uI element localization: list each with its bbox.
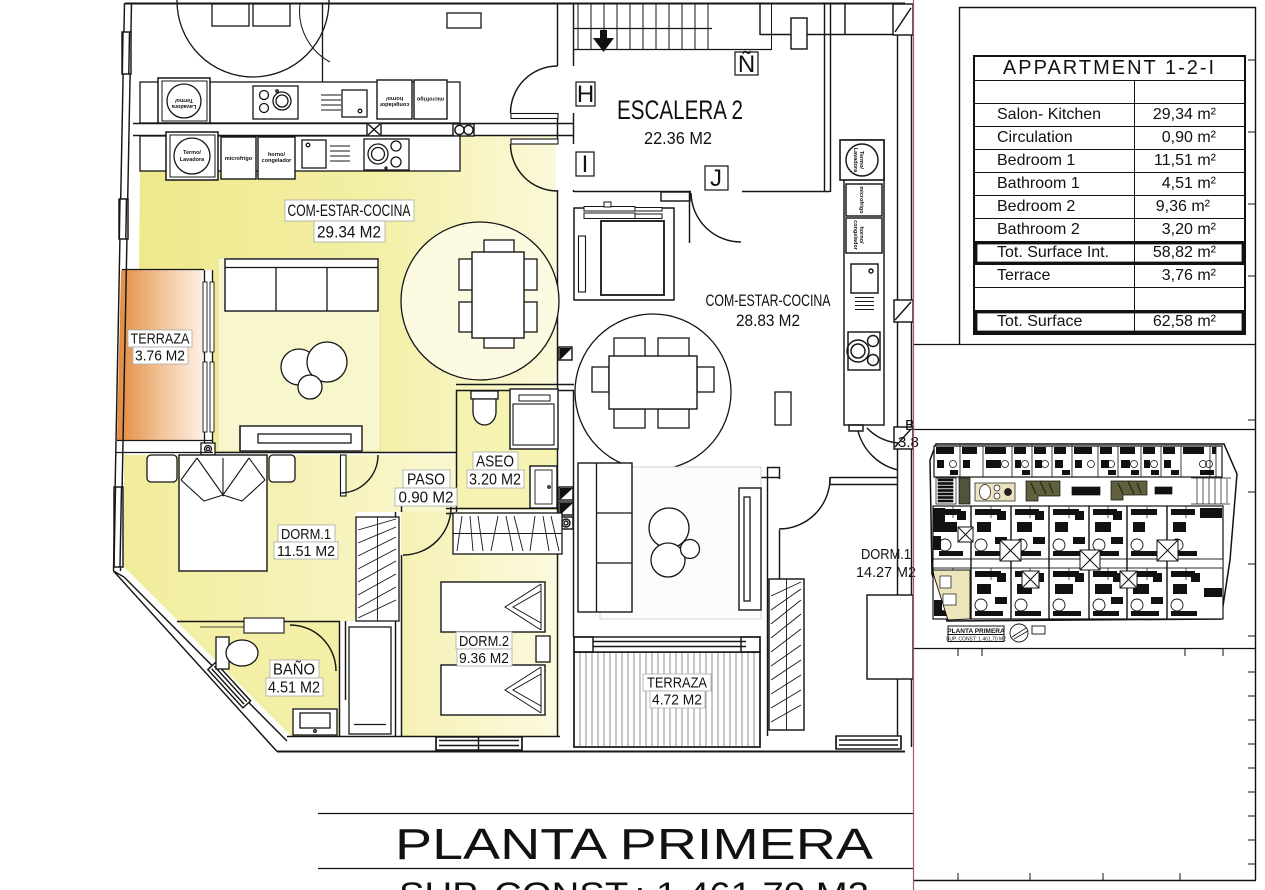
svg-text:PLANTA PRIMERA: PLANTA PRIMERA bbox=[947, 628, 1005, 635]
svg-text:DORM.1: DORM.1 bbox=[281, 526, 331, 543]
svg-text:9.36 M2: 9.36 M2 bbox=[459, 650, 509, 667]
svg-text:horno/: horno/ bbox=[385, 95, 403, 101]
svg-text:3.76 M2: 3.76 M2 bbox=[135, 348, 185, 365]
svg-text:14.27 M2: 14.27 M2 bbox=[856, 564, 916, 581]
svg-text:DORM.1: DORM.1 bbox=[861, 546, 911, 563]
svg-text:22.36 M2: 22.36 M2 bbox=[644, 128, 712, 148]
svg-text:PLANTA PRIMERA: PLANTA PRIMERA bbox=[395, 820, 874, 869]
svg-text:PASO: PASO bbox=[407, 472, 445, 489]
svg-text:J: J bbox=[710, 165, 722, 192]
svg-text:I: I bbox=[582, 151, 589, 178]
svg-text:3.8: 3.8 bbox=[898, 434, 919, 451]
svg-text:microfrigo: microfrigo bbox=[225, 156, 253, 162]
svg-text:Lavadora: Lavadora bbox=[852, 148, 858, 173]
svg-text:SUP. CONST: 1.461,70 M2: SUP. CONST: 1.461,70 M2 bbox=[946, 637, 1006, 643]
svg-text:28.83 M2: 28.83 M2 bbox=[736, 311, 800, 330]
svg-text:ESCALERA 2: ESCALERA 2 bbox=[617, 95, 743, 125]
svg-text:4.72 M2: 4.72 M2 bbox=[652, 692, 702, 709]
svg-text:TERRAZA: TERRAZA bbox=[647, 675, 707, 692]
svg-text:0.90 M2: 0.90 M2 bbox=[399, 490, 454, 507]
svg-text:4.51 M2: 4.51 M2 bbox=[268, 680, 320, 697]
svg-text:congelador: congelador bbox=[852, 220, 858, 251]
svg-text:Termo/: Termo/ bbox=[175, 97, 193, 103]
svg-text:29.34 M2: 29.34 M2 bbox=[317, 223, 381, 242]
svg-text:congelador: congelador bbox=[379, 101, 410, 107]
svg-text:microfrigo: microfrigo bbox=[416, 96, 444, 102]
svg-text:COM-ESTAR-COCINA: COM-ESTAR-COCINA bbox=[288, 201, 411, 220]
svg-text:SUP. CONST.: 1.461,70 M2: SUP. CONST.: 1.461,70 M2 bbox=[399, 876, 869, 890]
svg-text:DORM.2: DORM.2 bbox=[459, 633, 509, 650]
svg-text:ASEO: ASEO bbox=[476, 454, 514, 471]
svg-text:congelador: congelador bbox=[262, 158, 293, 164]
svg-text:H: H bbox=[577, 81, 594, 108]
svg-text:BAÑO: BAÑO bbox=[273, 662, 315, 679]
svg-text:11.51 M2: 11.51 M2 bbox=[277, 543, 335, 560]
svg-text:3.20 M2: 3.20 M2 bbox=[469, 472, 521, 489]
svg-text:microfrigo: microfrigo bbox=[858, 186, 864, 214]
svg-text:TERRAZA: TERRAZA bbox=[131, 331, 190, 348]
svg-text:Lavadora: Lavadora bbox=[171, 103, 196, 109]
svg-text:COM-ESTAR-COCINA: COM-ESTAR-COCINA bbox=[706, 291, 831, 310]
svg-text:Ñ: Ñ bbox=[738, 51, 755, 78]
svg-text:Termo/: Termo/ bbox=[183, 150, 201, 156]
svg-text:Lavadora: Lavadora bbox=[180, 157, 205, 163]
